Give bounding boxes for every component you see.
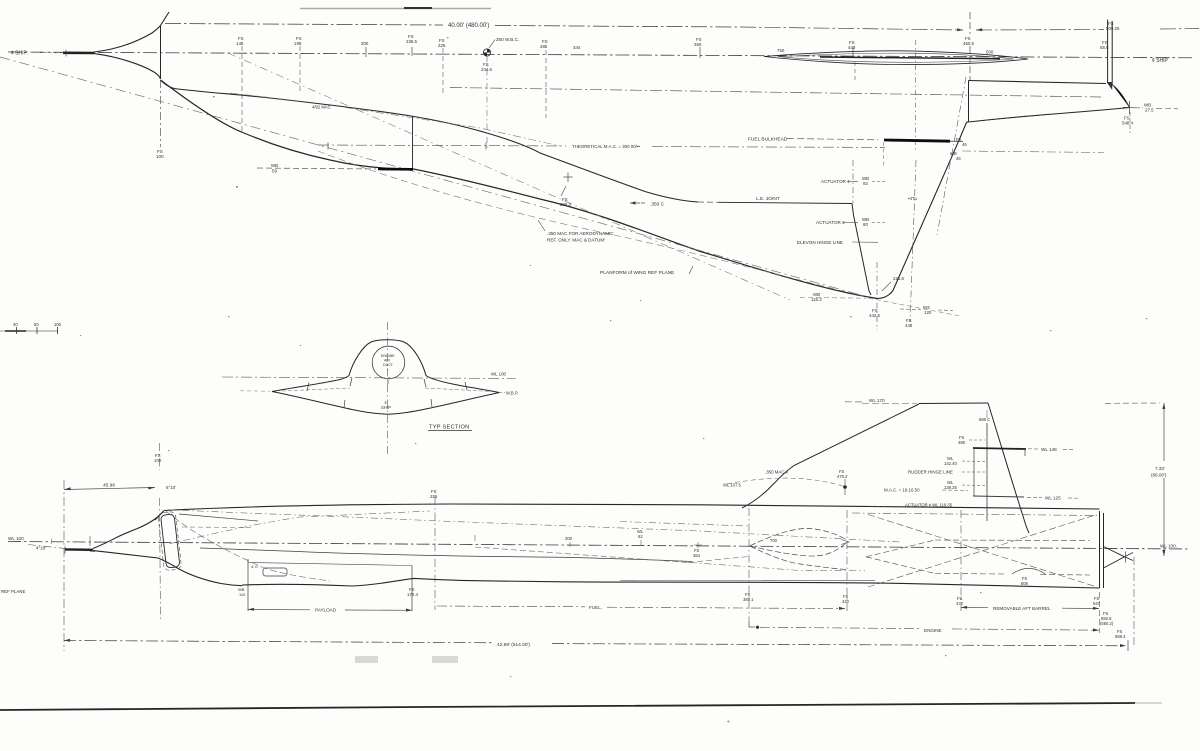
svg-text:42.88' (514.00'): 42.88' (514.00') <box>497 642 530 648</box>
svg-text:WL 148: WL 148 <box>1041 447 1057 452</box>
svg-text:55.5: 55.5 <box>1100 45 1109 50</box>
svg-text:139.25: 139.25 <box>944 485 957 490</box>
svg-text:460.5: 460.5 <box>963 41 975 46</box>
svg-text:285: 285 <box>540 44 548 49</box>
svg-text:221.6: 221.6 <box>893 276 905 281</box>
svg-text:50: 50 <box>34 322 39 327</box>
svg-text:449: 449 <box>848 45 856 50</box>
svg-text:ACTUATOR ¢ WL 119.35: ACTUATOR ¢ WL 119.35 <box>905 503 953 508</box>
svg-text:THEORETICAL M.A.C. = 300 00/•: THEORETICAL M.A.C. = 300 00/•• <box>572 144 640 149</box>
svg-text:÷: ÷ <box>727 719 730 725</box>
svg-text:344: 344 <box>573 45 581 50</box>
svg-text:364: 364 <box>693 553 701 558</box>
svg-text:WL 125: WL 125 <box>1045 496 1061 501</box>
svg-text:449: 449 <box>905 323 913 328</box>
svg-text:500: 500 <box>986 50 994 55</box>
svg-text:80: 80 <box>863 222 868 227</box>
svg-text:6°10': 6°10' <box>166 485 176 490</box>
svg-text:470.2: 470.2 <box>837 474 848 479</box>
svg-text:RUDDER HINGE LINE: RUDDER HINGE LINE <box>908 470 953 475</box>
svg-text:368.1: 368.1 <box>743 597 754 602</box>
svg-text:40: 40 <box>13 322 18 327</box>
svg-text:•: • <box>387 368 389 372</box>
svg-text:686 C: 686 C <box>979 417 990 422</box>
svg-text:DUCT: DUCT <box>383 363 394 367</box>
svg-text:46: 46 <box>962 142 967 147</box>
svg-text:548.4: 548.4 <box>1122 121 1134 126</box>
svg-text:WL 107.5: WL 107.5 <box>723 483 741 488</box>
svg-text:SHIP: SHIP <box>381 405 391 410</box>
svg-text:486: 486 <box>958 440 966 445</box>
svg-text:M.A.C. = 19.16.50: M.A.C. = 19.16.50 <box>884 488 920 493</box>
svg-text:AIR: AIR <box>384 359 390 363</box>
svg-text:120: 120 <box>924 310 932 315</box>
svg-text:100: 100 <box>154 458 162 463</box>
svg-text:350: 350 <box>694 42 702 47</box>
svg-text:L.E. JOINT: L.E. JOINT <box>756 196 780 202</box>
svg-text:45.96: 45.96 <box>103 483 115 489</box>
svg-text:100: 100 <box>156 154 164 159</box>
svg-text:ENGINE: ENGINE <box>924 628 942 633</box>
svg-text:568.4: 568.4 <box>1115 634 1126 639</box>
svg-text:TYP SECTION: TYP SECTION <box>429 425 470 431</box>
svg-text:110: 110 <box>239 592 246 597</box>
svg-text:WB: WB <box>271 163 278 168</box>
svg-text:62: 62 <box>638 534 643 539</box>
svg-text:(560.2): (560.2) <box>1100 621 1114 626</box>
svg-text:420: 420 <box>842 599 850 604</box>
svg-text:FUEL,: FUEL, <box>589 605 602 610</box>
svg-text:7.33': 7.33' <box>1155 466 1165 471</box>
svg-text:4/92 MAC: 4/92 MAC <box>312 105 331 110</box>
svg-text:WL 170: WL 170 <box>869 398 885 403</box>
svg-text:296.3: 296.3 <box>560 202 572 207</box>
svg-text:(88.00'): (88.00') <box>1151 473 1167 478</box>
svg-text:115.3: 115.3 <box>811 297 822 302</box>
svg-text:442.5: 442.5 <box>869 313 881 318</box>
svg-text:REF PLANE: REF PLANE <box>1 589 25 594</box>
svg-text:198: 198 <box>294 41 302 46</box>
svg-text:92: 92 <box>863 181 868 186</box>
svg-text:250 W.B.C.: 250 W.B.C. <box>496 37 519 42</box>
svg-text:.350 C: .350 C <box>650 202 665 208</box>
svg-text:•4Tu: •4Tu <box>908 196 917 201</box>
svg-text:750: 750 <box>777 48 785 53</box>
svg-text:¢ SHIP.: ¢ SHIP. <box>11 51 28 57</box>
svg-text:ACTUATOR ¢: ACTUATOR ¢ <box>821 179 850 184</box>
svg-text:100: 100 <box>54 322 62 327</box>
svg-text:FUEL BULKHEAD: FUEL BULKHEAD <box>748 137 788 143</box>
svg-text:470: 470 <box>956 601 964 606</box>
svg-text:.350 MAC ¢: .350 MAC ¢ <box>765 470 789 475</box>
svg-text:PLANFORM of WING REF PLANE: PLANFORM of WING REF PLANE <box>600 270 674 276</box>
svg-text:172.4: 172.4 <box>407 592 419 597</box>
svg-text:WL 100: WL 100 <box>8 536 24 541</box>
svg-text:PAYLOAD: PAYLOAD <box>315 608 337 613</box>
svg-text:236.5: 236.5 <box>406 39 418 44</box>
svg-text:46: 46 <box>956 156 961 161</box>
svg-text:.350 MAC FOR AERODYNAMIC: .350 MAC FOR AERODYNAMIC <box>547 231 614 236</box>
svg-text:WL 100.: WL 100. <box>1160 544 1177 549</box>
svg-text:300: 300 <box>565 536 573 541</box>
svg-text:ACTUATOR ¢: ACTUATOR ¢ <box>816 220 845 225</box>
svg-text:4'-0: 4'-0 <box>251 564 258 569</box>
svg-text:700: 700 <box>770 538 778 543</box>
svg-text:ELEVON HINGE LINE: ELEVON HINGE LINE <box>797 240 843 245</box>
svg-text:142.40: 142.40 <box>944 461 957 466</box>
svg-text:REMOVABLE AFT BARREL: REMOVABLE AFT BARREL <box>993 606 1051 611</box>
svg-text:W.B.P.: W.B.P. <box>506 391 518 396</box>
svg-text:4°10': 4°10' <box>36 545 46 551</box>
svg-text:59: 59 <box>272 169 277 174</box>
svg-text:40.00' (480.00'): 40.00' (480.00') <box>448 23 489 29</box>
svg-text:27.5: 27.5 <box>1145 108 1154 113</box>
svg-text:226: 226 <box>438 43 446 48</box>
svg-text:ENGINE: ENGINE <box>381 354 395 358</box>
svg-text:300: 300 <box>361 41 369 46</box>
svg-text:605: 605 <box>1021 581 1029 586</box>
svg-text:509.25: 509.25 <box>1106 26 1120 31</box>
svg-text:¢ SHIP: ¢ SHIP <box>1152 58 1169 64</box>
svg-text:WL 100: WL 100 <box>491 372 507 377</box>
svg-text:148: 148 <box>236 41 244 46</box>
svg-text:255: 255 <box>430 494 438 499</box>
svg-text:REF. ONLY. MAC & DATUM': REF. ONLY. MAC & DATUM' <box>547 238 605 243</box>
